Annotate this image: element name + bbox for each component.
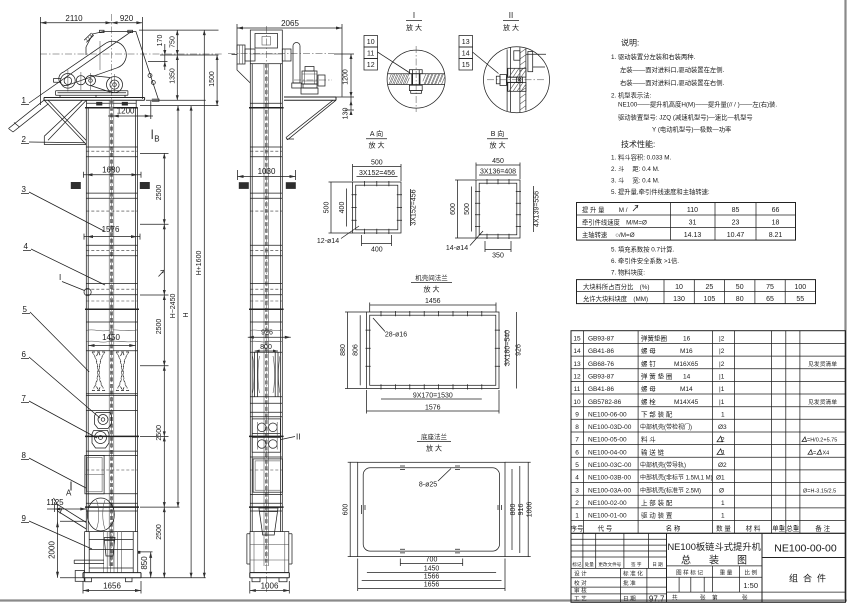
- svg-text:II: II: [509, 11, 513, 20]
- svg-text:1656: 1656: [424, 582, 440, 589]
- svg-text:1: 1: [722, 449, 726, 456]
- svg-text:1500: 1500: [209, 71, 216, 87]
- svg-text:18: 18: [772, 220, 780, 227]
- svg-text:3X136=408: 3X136=408: [480, 169, 516, 176]
- svg-text:GB41-86: GB41-86: [588, 386, 614, 393]
- svg-text:1030: 1030: [258, 167, 276, 176]
- svg-text:图: 图: [737, 555, 747, 567]
- svg-text:GB93-87: GB93-87: [588, 374, 614, 381]
- svg-text:左装——面对进料口,驱动装置在左侧.: 左装——面对进料口,驱动装置在左侧.: [620, 65, 724, 74]
- svg-text:850: 850: [140, 556, 149, 570]
- svg-text:23: 23: [732, 220, 740, 227]
- svg-text:750: 750: [169, 36, 176, 48]
- svg-text:15: 15: [573, 336, 581, 343]
- svg-text:1. 料斗容积: 0.033 M.: 1. 料斗容积: 0.033 M.: [611, 153, 671, 162]
- svg-text:H−2450: H−2450: [170, 294, 177, 319]
- svg-text:12: 12: [573, 374, 581, 381]
- svg-text:8-ø25: 8-ø25: [419, 482, 437, 489]
- svg-text:600: 600: [343, 504, 350, 516]
- svg-text:GB5782-86: GB5782-86: [588, 399, 622, 406]
- svg-text:920: 920: [120, 14, 134, 23]
- svg-text:4: 4: [575, 475, 579, 482]
- svg-text:NE100板链斗式提升机: NE100板链斗式提升机: [667, 541, 761, 552]
- svg-text:输 送 链: 输 送 链: [641, 447, 665, 456]
- svg-text:H: H: [183, 312, 190, 317]
- svg-text:3. 斗 宽: 0.4 M.: 3. 斗 宽: 0.4 M.: [611, 176, 660, 185]
- svg-text:2500: 2500: [156, 425, 163, 441]
- svg-text:130: 130: [673, 296, 685, 303]
- svg-text:400: 400: [339, 202, 346, 214]
- svg-text:10: 10: [675, 284, 683, 291]
- svg-text:数 量: 数 量: [716, 523, 731, 532]
- svg-text:5. 填充系数按 0.7计算.: 5. 填充系数按 0.7计算.: [611, 245, 675, 254]
- svg-text:14: 14: [462, 51, 470, 58]
- svg-text:II: II: [296, 433, 300, 442]
- svg-text:中部机壳(带导轨): 中部机壳(带导轨): [640, 461, 686, 469]
- svg-text:B: B: [154, 135, 159, 144]
- svg-text:25: 25: [706, 284, 714, 291]
- svg-text:6: 6: [22, 350, 27, 359]
- svg-text:总: 总: [681, 554, 691, 567]
- svg-text:组: 组: [789, 573, 798, 584]
- svg-text:11: 11: [367, 51, 374, 58]
- svg-text:共: 共: [672, 594, 678, 602]
- svg-text:Ø1: Ø1: [716, 475, 725, 482]
- svg-text:1. 驱动装置分左装和右装两种.: 1. 驱动装置分左装和右装两种.: [611, 52, 696, 61]
- svg-text:926: 926: [261, 329, 273, 336]
- svg-text:1: 1: [721, 500, 725, 507]
- svg-text:880: 880: [340, 344, 347, 356]
- svg-text:7: 7: [575, 437, 579, 444]
- svg-text:NE100——提升机高度H(M)——提升量(// / )—: NE100——提升机高度H(M)——提升量(// / )——左(右)装.: [618, 100, 777, 109]
- svg-text:1200: 1200: [343, 69, 350, 85]
- svg-text:85: 85: [732, 207, 740, 214]
- svg-text:I: I: [59, 273, 61, 282]
- svg-text:1006: 1006: [261, 581, 279, 590]
- svg-text:NE100-06-00: NE100-06-00: [588, 411, 627, 418]
- svg-text:1450: 1450: [424, 566, 440, 573]
- svg-text:允许大块料块度 (MM): 允许大块料块度 (MM): [583, 294, 648, 303]
- svg-text:中部机壳(标准节 2.5M): 中部机壳(标准节 2.5M): [640, 486, 701, 494]
- svg-text:66: 66: [772, 207, 780, 214]
- svg-text:更改文件号: 更改文件号: [598, 561, 621, 568]
- svg-text:GB41-86: GB41-86: [588, 348, 614, 355]
- svg-text:M16X65: M16X65: [674, 361, 699, 368]
- svg-text:机壳间法兰: 机壳间法兰: [415, 273, 448, 282]
- svg-text:65: 65: [766, 296, 774, 303]
- svg-text:见发货清单: 见发货清单: [808, 360, 837, 368]
- svg-text:放 大: 放 大: [503, 23, 519, 32]
- svg-text:2. 机型表示法:: 2. 机型表示法:: [611, 91, 651, 100]
- svg-text:|1: |1: [719, 386, 725, 393]
- svg-text:700: 700: [426, 557, 438, 564]
- svg-text:下 部 装 配: 下 部 装 配: [641, 409, 673, 418]
- svg-text:螺 钉: 螺 钉: [641, 359, 656, 368]
- svg-text:螺 栓: 螺 栓: [641, 397, 656, 406]
- svg-text:M14: M14: [680, 386, 693, 393]
- svg-text:55: 55: [796, 296, 804, 303]
- svg-text:校 对: 校 对: [574, 579, 587, 587]
- svg-text:牵引件线速度 M/M=Ø: 牵引件线速度 M/M=Ø: [582, 218, 647, 227]
- svg-text:13: 13: [573, 361, 581, 368]
- svg-text:序号: 序号: [571, 523, 585, 532]
- svg-text:大块料所占百分比 (%): 大块料所占百分比 (%): [583, 282, 649, 291]
- svg-text:1576: 1576: [425, 405, 441, 412]
- svg-text:设 计: 设 计: [574, 570, 587, 578]
- svg-text:50: 50: [736, 284, 744, 291]
- svg-text:2: 2: [721, 437, 725, 444]
- svg-text:1566: 1566: [424, 574, 440, 581]
- svg-text:说明:: 说明:: [621, 38, 639, 48]
- svg-text:1: 1: [721, 411, 725, 418]
- svg-text:600: 600: [450, 203, 457, 215]
- svg-text:Ø2: Ø2: [718, 462, 727, 469]
- svg-text:130: 130: [343, 108, 350, 120]
- svg-text:底座法兰: 底座法兰: [421, 432, 448, 441]
- svg-text:5: 5: [23, 305, 28, 314]
- svg-text:|1: |1: [719, 399, 725, 406]
- svg-text:|2: |2: [719, 336, 725, 343]
- svg-text:3X180=540: 3X180=540: [505, 330, 512, 366]
- svg-text:1350: 1350: [169, 68, 176, 84]
- svg-text:11: 11: [574, 386, 581, 393]
- svg-text:第: 第: [712, 594, 718, 602]
- svg-text:螺 母: 螺 母: [641, 346, 656, 355]
- svg-text:|1: |1: [719, 374, 725, 381]
- svg-text:9: 9: [575, 411, 579, 418]
- svg-text:Ø=H-3.15/2.5: Ø=H-3.15/2.5: [803, 488, 836, 494]
- svg-text:GB93-87: GB93-87: [588, 336, 614, 343]
- svg-text:9: 9: [22, 514, 27, 523]
- svg-text:驱 动 装 置: 驱 动 装 置: [641, 511, 673, 520]
- svg-text:12: 12: [367, 62, 375, 69]
- svg-text:标 准 化: 标 准 化: [623, 570, 643, 578]
- svg-text:5. 提升量,牵引件线速度和主轴转速:: 5. 提升量,牵引件线速度和主轴转速:: [611, 187, 710, 196]
- svg-text:13: 13: [462, 39, 470, 46]
- svg-text:NE100-04-00: NE100-04-00: [588, 449, 627, 456]
- svg-text:8.21: 8.21: [769, 232, 783, 239]
- svg-text:1200: 1200: [117, 107, 135, 116]
- svg-text:1:50: 1:50: [743, 581, 758, 590]
- svg-text:916: 916: [518, 504, 525, 516]
- svg-text:2: 2: [22, 135, 27, 144]
- svg-text:500: 500: [324, 202, 331, 214]
- svg-text:15: 15: [462, 62, 470, 69]
- svg-text:14: 14: [683, 374, 691, 381]
- svg-text:放 大: 放 大: [426, 444, 442, 453]
- svg-text:6. 牵引件安全系数 >1倍.: 6. 牵引件安全系数 >1倍.: [611, 256, 679, 265]
- svg-text:3: 3: [575, 487, 579, 494]
- svg-text:工 艺: 工 艺: [574, 596, 587, 603]
- svg-text:H+1600: H+1600: [196, 251, 203, 276]
- svg-text:张: 张: [700, 594, 706, 602]
- svg-text:装: 装: [709, 554, 719, 567]
- svg-text:NE100-00-00: NE100-00-00: [774, 543, 837, 555]
- svg-text:中部机壳(非标节 1.5M,1 M): 中部机壳(非标节 1.5M,1 M): [640, 474, 713, 482]
- svg-text:=H/0.2+5.75: =H/0.2+5.75: [807, 438, 837, 444]
- svg-text:14-ø14: 14-ø14: [446, 245, 468, 252]
- svg-text:X4: X4: [823, 450, 830, 456]
- svg-text:2500: 2500: [156, 319, 163, 335]
- svg-text:NE100-02-00: NE100-02-00: [588, 500, 627, 507]
- svg-text:14: 14: [573, 348, 581, 355]
- svg-text:97.7: 97.7: [649, 595, 665, 604]
- svg-text:800: 800: [260, 344, 272, 351]
- svg-text:NE100-03A-00: NE100-03A-00: [588, 487, 631, 494]
- svg-text:标记: 标记: [572, 561, 582, 568]
- svg-text:14.13: 14.13: [684, 232, 702, 239]
- svg-text:80: 80: [736, 296, 744, 303]
- svg-text:Ø3: Ø3: [718, 424, 727, 431]
- svg-text:名 称: 名 称: [666, 523, 681, 532]
- svg-text:中部机壳(带检视门): 中部机壳(带检视门): [640, 423, 692, 431]
- svg-text:500: 500: [371, 160, 383, 167]
- svg-text:1656: 1656: [103, 581, 121, 590]
- svg-text:1006: 1006: [527, 502, 534, 518]
- svg-text:张: 张: [742, 594, 748, 602]
- svg-text:500: 500: [464, 203, 471, 215]
- svg-text:350: 350: [492, 253, 504, 260]
- svg-text:5: 5: [575, 462, 579, 469]
- svg-text:2500: 2500: [156, 185, 163, 201]
- svg-text:806: 806: [353, 344, 360, 356]
- svg-text:A 向: A 向: [370, 129, 383, 138]
- svg-text:合: 合: [803, 573, 812, 584]
- svg-text:8: 8: [575, 424, 579, 431]
- svg-text:NE100-01-00: NE100-01-00: [588, 513, 627, 520]
- svg-text:1: 1: [721, 513, 725, 520]
- svg-text:1450: 1450: [102, 333, 120, 342]
- svg-text:12-ø14: 12-ø14: [317, 238, 339, 245]
- svg-text:处量: 处量: [585, 561, 595, 568]
- svg-text:代 号: 代 号: [598, 523, 613, 532]
- svg-text:I: I: [413, 11, 415, 20]
- svg-text:3: 3: [22, 185, 27, 194]
- svg-text:日 期: 日 期: [623, 596, 636, 603]
- svg-text:28-ø16: 28-ø16: [385, 332, 407, 339]
- svg-text:10.47: 10.47: [727, 232, 745, 239]
- svg-text:3X152=456: 3X152=456: [411, 189, 418, 225]
- svg-text:NE100-03B-00: NE100-03B-00: [588, 475, 631, 482]
- svg-text:主轴转速 ○/M=Ø: 主轴转速 ○/M=Ø: [582, 230, 635, 239]
- svg-text:4: 4: [24, 242, 29, 251]
- svg-text:B 向: B 向: [491, 129, 505, 138]
- svg-text:31: 31: [689, 220, 697, 227]
- svg-text:6: 6: [575, 449, 579, 456]
- svg-text:图 样 标 记: 图 样 标 记: [676, 569, 703, 577]
- svg-text:|2: |2: [719, 348, 725, 355]
- svg-text:450: 450: [492, 158, 504, 165]
- svg-text:800: 800: [510, 504, 517, 516]
- svg-text:7. 物料块度:: 7. 物料块度:: [611, 268, 645, 277]
- svg-text:1: 1: [22, 96, 27, 105]
- svg-text:提 升 量 M /: 提 升 量 M /: [582, 205, 628, 214]
- svg-text:弹 簧 垫 圈: 弹 簧 垫 圈: [641, 372, 672, 381]
- svg-text:100: 100: [794, 284, 806, 291]
- svg-text:1: 1: [575, 513, 579, 520]
- svg-text:弹簧垫圈: 弹簧垫圈: [641, 334, 667, 343]
- svg-text:审 核: 审 核: [574, 587, 587, 595]
- svg-text:见发货清单: 见发货清单: [808, 398, 837, 406]
- svg-text:16: 16: [683, 336, 691, 343]
- svg-text:75: 75: [766, 284, 774, 291]
- svg-text:2000: 2000: [48, 541, 57, 559]
- svg-text:GB68-76: GB68-76: [588, 361, 614, 368]
- svg-text:1125: 1125: [46, 498, 64, 507]
- svg-text:单重: 单重: [772, 523, 786, 532]
- svg-text:驱动装置型号: JZQ (减速机型号)—速比—机型号: 驱动装置型号: JZQ (减速机型号)—速比—机型号: [618, 113, 753, 122]
- svg-text:NE100-05-00: NE100-05-00: [588, 437, 627, 444]
- svg-text:2: 2: [575, 500, 579, 507]
- svg-text:2065: 2065: [281, 19, 299, 28]
- svg-text:重 量: 重 量: [720, 569, 733, 577]
- svg-text:1576: 1576: [102, 225, 120, 234]
- svg-text:件: 件: [817, 573, 826, 584]
- svg-text:M16: M16: [680, 348, 693, 355]
- svg-text:9X170=1530: 9X170=1530: [413, 393, 453, 400]
- svg-text:10: 10: [573, 399, 581, 406]
- svg-text:170: 170: [157, 35, 164, 47]
- svg-text:=: =: [813, 450, 816, 456]
- svg-text:Y (电动机型号)—极数—功率: Y (电动机型号)—极数—功率: [652, 125, 731, 134]
- svg-text:放 大: 放 大: [424, 285, 440, 294]
- svg-text:8: 8: [22, 451, 27, 460]
- svg-text:2500: 2500: [156, 524, 163, 540]
- svg-text:400: 400: [371, 247, 383, 254]
- svg-text:105: 105: [704, 296, 716, 303]
- svg-text:技术性能:: 技术性能:: [621, 139, 655, 149]
- svg-text:|2: |2: [719, 361, 725, 368]
- svg-text:放 大: 放 大: [406, 23, 422, 32]
- svg-text:2110: 2110: [65, 14, 83, 23]
- svg-text:1456: 1456: [425, 298, 441, 305]
- svg-text:上 部 装 配: 上 部 装 配: [641, 498, 673, 507]
- svg-text:签 字: 签 字: [631, 561, 642, 567]
- svg-text:3X152=456: 3X152=456: [359, 170, 395, 177]
- svg-text:M14X45: M14X45: [674, 399, 699, 406]
- svg-text:总重: 总重: [786, 523, 800, 532]
- svg-text:A: A: [66, 489, 72, 498]
- svg-text:10: 10: [367, 39, 375, 46]
- svg-text:螺 母: 螺 母: [641, 384, 656, 393]
- svg-text:右装——面对进料口,驱动装置在右侧.: 右装——面对进料口,驱动装置在右侧.: [620, 78, 724, 87]
- svg-text:2. 斗 距: 0.4 M.: 2. 斗 距: 0.4 M.: [611, 165, 660, 173]
- svg-text:放 大: 放 大: [369, 141, 385, 150]
- svg-text:材 料: 材 料: [746, 523, 761, 532]
- svg-text:110: 110: [687, 207, 698, 214]
- svg-text:4X139=556: 4X139=556: [534, 191, 541, 227]
- svg-text:NE100-03C-00: NE100-03C-00: [588, 462, 632, 469]
- svg-text:批 准: 批 准: [623, 579, 636, 587]
- svg-text:7: 7: [22, 394, 27, 403]
- svg-text:NE100-03D-00: NE100-03D-00: [588, 424, 632, 431]
- svg-text:1680: 1680: [102, 165, 120, 174]
- svg-text:备 注: 备 注: [815, 523, 830, 532]
- svg-text:比 例: 比 例: [744, 569, 757, 577]
- svg-text:料 斗: 料 斗: [641, 435, 656, 444]
- svg-text:放 大: 放 大: [490, 141, 506, 150]
- svg-text:Ø: Ø: [719, 487, 724, 494]
- svg-text:926: 926: [516, 344, 523, 356]
